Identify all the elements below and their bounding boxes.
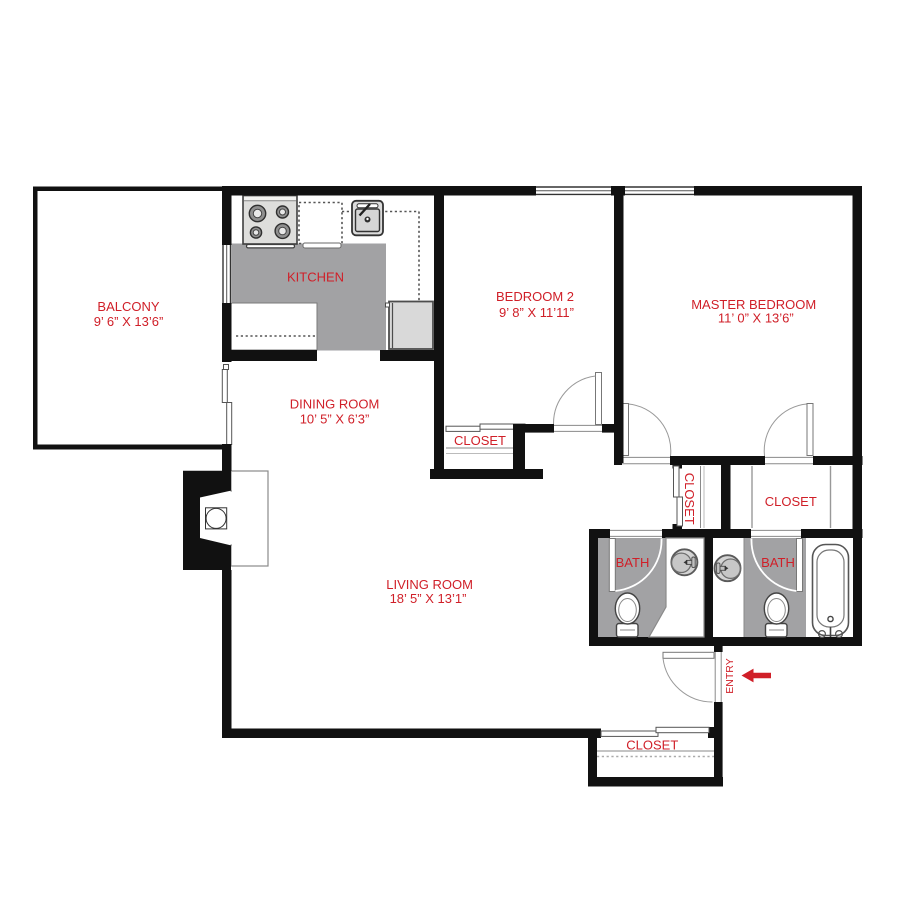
svg-text:BATH: BATH bbox=[761, 555, 795, 570]
svg-text:CLOSET: CLOSET bbox=[626, 738, 678, 753]
svg-text:KITCHEN: KITCHEN bbox=[287, 270, 344, 285]
svg-text:ENTRY: ENTRY bbox=[724, 658, 736, 693]
svg-text:DINING ROOM: DINING ROOM bbox=[290, 397, 380, 412]
svg-text:BALCONY: BALCONY bbox=[97, 299, 159, 314]
svg-text:9’ 6” X 13’6”: 9’ 6” X 13’6” bbox=[94, 314, 164, 329]
svg-text:CLOSET: CLOSET bbox=[765, 494, 817, 509]
svg-text:BATH: BATH bbox=[616, 555, 650, 570]
svg-text:LIVING ROOM: LIVING ROOM bbox=[386, 577, 473, 592]
svg-text:CLOSET: CLOSET bbox=[682, 473, 697, 525]
svg-text:CLOSET: CLOSET bbox=[454, 433, 506, 448]
svg-text:9’ 8” X 11’11”: 9’ 8” X 11’11” bbox=[499, 305, 574, 320]
svg-text:10’ 5” X 6’3”: 10’ 5” X 6’3” bbox=[300, 411, 370, 426]
svg-text:18’ 5” X 13’1”: 18’ 5” X 13’1” bbox=[390, 591, 467, 606]
svg-text:BEDROOM 2: BEDROOM 2 bbox=[496, 289, 574, 304]
svg-text:11’ 0” X 13’6”: 11’ 0” X 13’6” bbox=[718, 311, 794, 326]
